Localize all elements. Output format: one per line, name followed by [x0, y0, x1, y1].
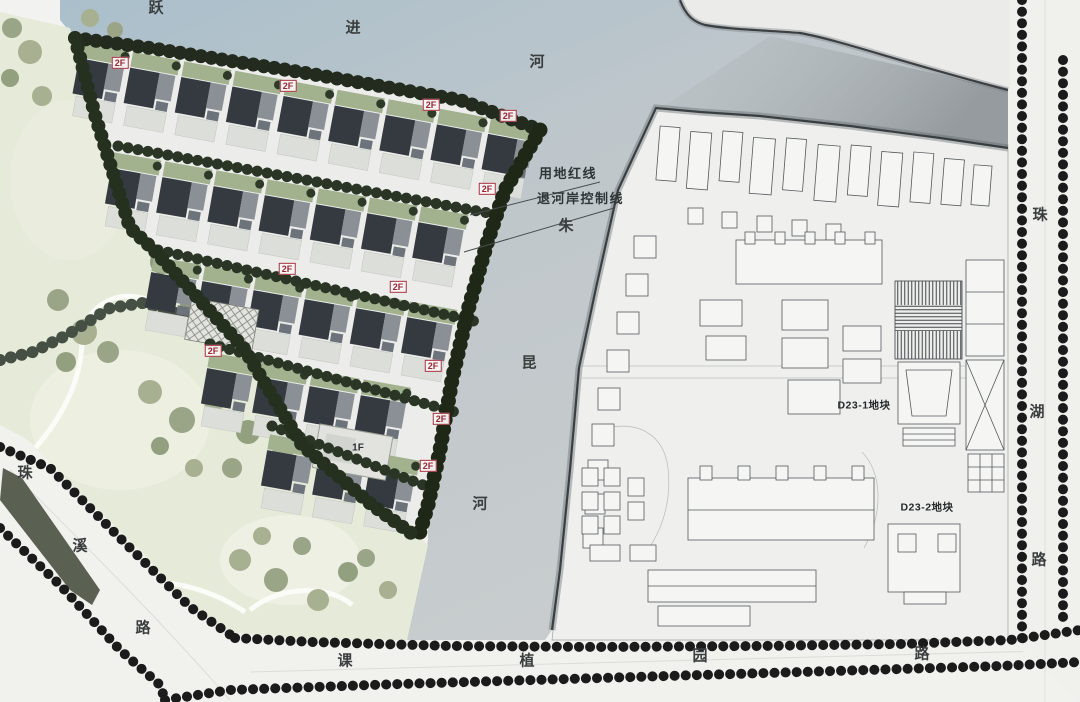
site-plan-drawing: [0, 0, 1080, 702]
floor-badge-2f: 2F: [433, 413, 450, 425]
floor-badge-2f: 2F: [479, 183, 496, 195]
floor-badge-2f: 2F: [279, 263, 296, 275]
floor-badge-1f: 1F: [352, 443, 364, 454]
floor-badge-2f: 2F: [500, 110, 517, 122]
floor-badge-2f: 2F: [280, 80, 297, 92]
kezhiyuan-road-label-char-1: 课: [337, 654, 352, 669]
kezhiyuan-road-label-char-2: 植: [519, 654, 534, 669]
zhuxi-road-label-char-2: 溪: [72, 539, 87, 554]
zhuhu-road-label-char-1: 珠: [1032, 208, 1047, 223]
floor-badge-2f: 2F: [425, 360, 442, 372]
kezhiyuan-road-label-char-4: 路: [914, 647, 929, 662]
floor-badge-2f: 2F: [390, 281, 407, 293]
annotation-land-red-line: 用地红线: [539, 167, 597, 180]
kezhiyuan-road-label-char-3: 园: [692, 649, 707, 664]
parcel-label-d23-2: D23-2地块: [900, 500, 953, 515]
parcel-label-d23-1: D23-1地块: [837, 398, 890, 413]
floor-badge-2f: 2F: [420, 460, 437, 472]
zhuxi-road-label-char-1: 珠: [17, 466, 32, 481]
floor-badge-2f: 2F: [205, 345, 222, 357]
zhuhu-road-label-char-3: 路: [1031, 553, 1046, 568]
floor-badge-2f: 2F: [423, 99, 440, 111]
zhuxi-road-label-char-3: 路: [135, 621, 150, 636]
site-plan-map: 跃 进 河 朱 昆 河 珠 溪 路 珠 湖 路 课 植 园 路 用地红线 退河岸…: [0, 0, 1080, 702]
annotation-riverbank-setback-line: 退河岸控制线: [537, 192, 624, 205]
right-site: [552, 108, 1008, 640]
yuejin-river-label-char-2: 进: [345, 21, 360, 36]
floor-badge-2f: 2F: [112, 57, 129, 69]
yuejin-river-label-char-1: 跃: [148, 1, 163, 16]
zhuhu-road-label-char-2: 湖: [1029, 405, 1044, 420]
zhukun-river-label-char-2: 昆: [521, 356, 536, 371]
yuejin-river-label-char-3: 河: [529, 55, 544, 70]
zhukun-river-label-char-3: 河: [472, 497, 487, 512]
zhukun-river-label-char-1: 朱: [558, 219, 573, 234]
